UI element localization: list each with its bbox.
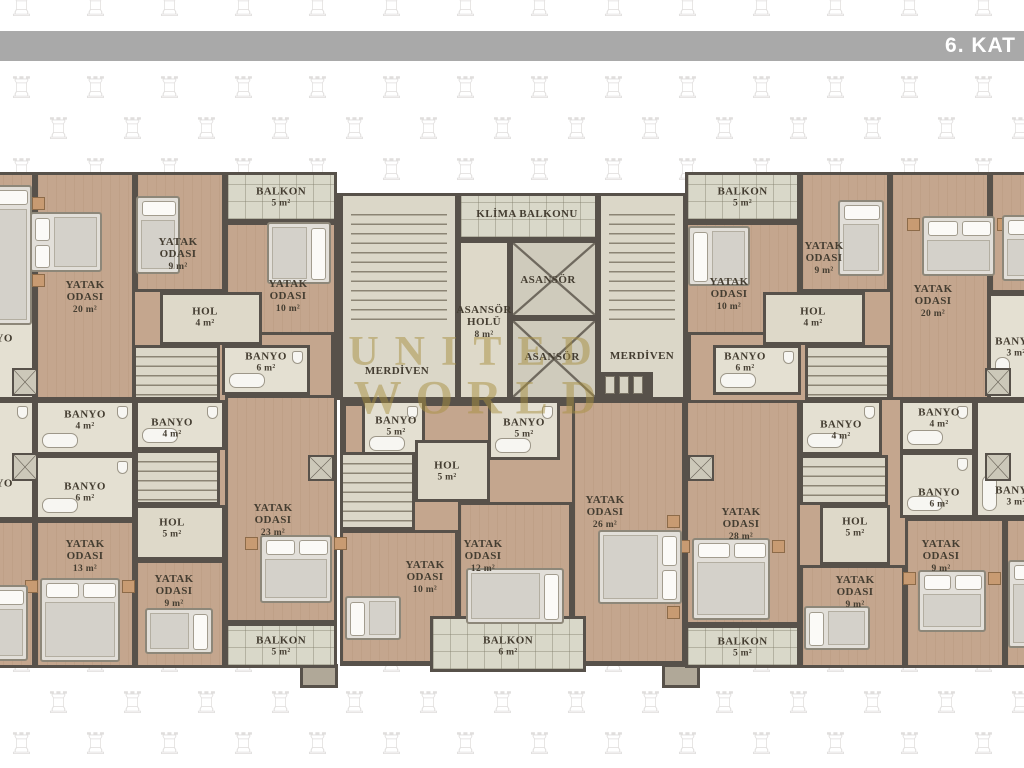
shaft-x-lines [310,457,332,479]
room-name: BANYO [724,350,766,362]
logo-pattern-icon: ♖ [896,0,923,22]
shaft-x-icon [308,455,334,481]
nightstand [334,537,347,550]
logo-pattern-icon: ♖ [415,689,442,719]
floor-title: 6. KAT [945,34,1016,58]
room-stairs-right-bottom [800,455,888,505]
logo-pattern-icon: ♖ [156,0,183,22]
room-label-yatak-odasi-10-middle: YATAK ODASI10 m² [396,559,454,595]
shaft-x-lines [14,370,36,394]
room-name: YATAK ODASI [56,279,114,304]
toilet-icon [207,406,218,419]
nightstand [32,274,45,287]
room-area: 10 m² [396,585,454,595]
room-area: 6 m² [245,364,287,374]
logo-pattern-icon: ♖ [896,74,923,104]
logo-pattern-icon: ♖ [674,730,701,760]
room-label-banyo-4-right-a: BANYO4 m² [820,418,862,441]
logo-pattern-icon: ♖ [193,115,220,145]
room-name: BALKON [717,635,767,647]
pillow [844,205,880,220]
room-name: BANYO [918,406,960,418]
room-area: 4 m² [151,430,193,440]
logo-pattern-icon: ♖ [970,74,997,104]
logo-pattern-icon: ♖ [822,74,849,104]
shaft-x-icon [985,368,1011,396]
room-label-banyo-6-left-top: BANYO6 m² [245,350,287,373]
pillow [662,570,677,600]
toilet-icon [957,458,968,471]
bed [260,535,332,603]
room-name: YATAK ODASI [244,502,302,527]
logo-pattern-icon: ♖ [378,730,405,760]
pillow [193,614,208,650]
pillow [693,232,708,282]
bed [30,212,102,272]
logo-pattern-icon: ♖ [452,730,479,760]
logo-pattern-icon: ♖ [156,730,183,760]
blanket [927,240,990,271]
room-area: 5 m² [717,648,767,658]
logo-pattern-icon: ♖ [600,730,627,760]
room-name: ASANSÖR HOLÜ [455,304,513,329]
nightstand [667,515,680,528]
logo-pattern-icon: ♖ [822,0,849,22]
room-label-hol-4-right-top: HOL4 m² [800,305,826,328]
logo-pattern-icon: ♖ [1007,689,1024,719]
room-label-asansor-1: ASANSÖR [520,274,575,286]
toilet-icon [292,351,303,364]
bathtub-icon [369,436,405,451]
room-name: YATAK ODASI [912,538,970,563]
room-label-partial-bath-left-mid: BANYOm² [0,332,13,355]
shaft-x-lines [987,455,1009,479]
room-name: BANYO [0,477,13,489]
logo-pattern-icon: ♖ [785,115,812,145]
bathtub-icon [495,438,531,453]
room-area: 5 m² [256,199,306,209]
pillow [0,190,28,205]
room-name: BANYO [151,416,193,428]
room-stairs-left-top [133,345,220,400]
logo-pattern-icon: ♖ [230,730,257,760]
room-area: 6 m² [918,500,960,510]
logo-pattern-icon: ♖ [859,689,886,719]
room-label-yatak-odasi-12-middle: YATAK ODASI12 m² [454,538,512,574]
logo-pattern-icon: ♖ [822,730,849,760]
room-label-balkon-5-left-top: BALKON5 m² [256,185,306,208]
logo-pattern-icon: ♖ [933,689,960,719]
room-stairs-middle [340,452,415,530]
pillow [0,590,24,605]
logo-pattern-icon: ♖ [230,0,257,22]
logo-pattern-icon: ♖ [637,115,664,145]
blanket [45,602,115,657]
bed [0,585,28,661]
room-area: 26 m² [576,520,634,530]
logo-pattern-icon: ♖ [637,689,664,719]
logo-pattern-icon: ♖ [8,0,35,22]
pillow [962,221,992,236]
room-area: 6 m² [724,364,766,374]
room-label-yatak-odasi-26-middle: YATAK ODASI26 m² [576,494,634,530]
blanket [923,594,981,627]
room-area: 4 m² [820,432,862,442]
nightstand [122,580,135,593]
pillow [809,612,824,646]
room-label-yatak-odasi-23-left: YATAK ODASI23 m² [244,502,302,538]
logo-pattern-icon: ♖ [378,0,405,22]
room-area: 4 m² [64,422,106,432]
logo-pattern-icon: ♖ [859,115,886,145]
logo-pattern-icon: ♖ [230,74,257,104]
bed [40,578,120,662]
logo-pattern-icon: ♖ [896,730,923,760]
room-area: 5 m² [842,529,868,539]
room-label-merdiven-right: MERDİVEN [610,350,674,362]
logo-pattern-icon: ♖ [1007,115,1024,145]
room-area: 5 m² [434,473,460,483]
pillow [734,543,766,558]
logo-pattern-icon: ♖ [82,0,109,22]
pillow [1014,565,1024,580]
toilet-icon [783,351,794,364]
pillow [46,583,79,598]
logo-pattern-icon: ♖ [156,74,183,104]
room-area: 3 m² [995,498,1024,508]
room-area: 5 m² [375,428,417,438]
bed [804,606,870,650]
logo-pattern-icon: ♖ [8,730,35,760]
room-label-yatak-odasi-20-right: YATAK ODASI20 m² [904,283,962,319]
logo-pattern-icon: ♖ [600,156,627,186]
room-name: YATAK ODASI [149,236,207,261]
logo-pattern-icon: ♖ [378,74,405,104]
blanket [369,601,396,635]
pillow [350,602,365,636]
pillow [299,540,328,555]
room-name: ASANSÖR [520,274,575,286]
room-label-banyo-4-left-a: BANYO4 m² [64,408,106,431]
logo-pattern-icon: ♖ [600,0,627,22]
room-stairs-left-bottom [135,450,220,505]
logo-pattern-icon: ♖ [45,689,72,719]
room-name: HOL [800,305,826,317]
room-label-yatak-odasi-10-left-top: YATAK ODASI10 m² [259,278,317,314]
bed [922,216,995,276]
room-label-yatak-odasi-9-right-top: YATAK ODASI9 m² [795,240,853,276]
blanket [603,535,658,599]
logo-pattern-icon: ♖ [267,115,294,145]
room-name: HOL [159,516,185,528]
bathtub-icon [907,430,943,445]
room-area: 12 m² [454,564,512,574]
room-area: 13 m² [56,564,114,574]
bed [1008,560,1024,648]
shaft-x-lines [987,370,1009,394]
room-area: 5 m² [503,430,545,440]
room-name: BALKON [483,634,533,646]
room-label-yatak-odasi-20-left: YATAK ODASI20 m² [56,279,114,315]
room-name: BANYO [918,486,960,498]
shaft-x-icon [688,455,714,481]
pillow [928,221,958,236]
shaft-x-lines [14,455,36,479]
blanket [150,613,189,649]
room-name: YATAK ODASI [454,538,512,563]
logo-pattern-icon: ♖ [489,115,516,145]
room-label-banyo-4-left-b: BANYO4 m² [151,416,193,439]
room-name: YATAK ODASI [700,276,758,301]
room-area: 23 m² [244,528,302,538]
blanket [712,231,745,281]
shaft-x-icon [12,453,38,481]
logo-pattern-icon: ♖ [933,115,960,145]
bed [598,530,682,604]
logo-pattern-icon: ♖ [526,74,553,104]
room-area: 4 m² [800,319,826,329]
room-label-hol-5-left-bottom: HOL5 m² [159,516,185,539]
toilet-icon [117,461,128,474]
blanket [272,227,307,279]
blanket [697,562,765,615]
bed [0,185,32,325]
room-name: BANYO [0,332,13,344]
stair-treads-icon [609,206,675,323]
nightstand [903,572,916,585]
room-stairs-right-top [805,345,890,400]
logo-pattern-icon: ♖ [304,74,331,104]
room-area: 5 m² [717,199,767,209]
logo-pattern-icon: ♖ [785,689,812,719]
logo-pattern-icon: ♖ [711,689,738,719]
pillow [35,245,50,268]
room-area: 9 m² [826,600,884,610]
room-name: YATAK ODASI [145,573,203,598]
shaft-x-icon [12,368,38,396]
logo-pattern-icon: ♖ [970,730,997,760]
nightstand [32,197,45,210]
logo-pattern-icon: ♖ [526,730,553,760]
room-name: BALKON [256,634,306,646]
room-label-yatak-odasi-9-left-bottom: YATAK ODASI9 m² [145,573,203,609]
bathtub-icon [720,373,756,388]
pillow [924,575,951,590]
logo-pattern-icon: ♖ [600,74,627,104]
room-name: BALKON [256,185,306,197]
logo-pattern-icon: ♖ [711,115,738,145]
toilet-icon [117,406,128,419]
room-area: 3 m² [995,349,1024,359]
room-name: BANYO [995,335,1024,347]
room-label-yatak-odasi-9-right-bottom-b: YATAK ODASI9 m² [912,538,970,574]
logo-pattern-icon: ♖ [119,115,146,145]
room-area: m² [0,491,13,501]
room-label-banyo-6-right-bottom: BANYO6 m² [918,486,960,509]
pillow [35,218,50,241]
pillow [698,543,730,558]
room-label-yatak-odasi-13-left: YATAK ODASI13 m² [56,538,114,574]
room-label-balkon-5-left-bottom: BALKON5 m² [256,634,306,657]
room-name: BANYO [245,350,287,362]
shaft-x-lines [690,457,712,479]
stair-treads-icon [351,206,447,323]
room-merdiven-right [598,193,686,400]
room-name: BANYO [64,408,106,420]
room-area: 4 m² [918,420,960,430]
room-name: HOL [192,305,218,317]
room-label-partial-bath-right-bottom: BANYO3 m² [995,484,1024,507]
bathtub-icon [42,433,78,448]
room-label-yatak-odasi-10-right-top: YATAK ODASI10 m² [700,276,758,312]
room-label-balkon-5-right-top: BALKON5 m² [717,185,767,208]
room-label-banyo-4-right-b: BANYO4 m² [918,406,960,429]
room-name: YATAK ODASI [795,240,853,265]
room-label-banyo-6-right-top: BANYO6 m² [724,350,766,373]
room-area: 10 m² [259,304,317,314]
room-area: 9 m² [149,262,207,272]
room-area: 9 m² [145,599,203,609]
bed [345,596,401,640]
room-label-balkon-5-right-bottom: BALKON5 m² [717,635,767,658]
logo-pattern-icon: ♖ [82,730,109,760]
watermark-text-line2: WORLD [354,371,611,426]
logo-pattern-icon: ♖ [341,115,368,145]
logo-pattern-icon: ♖ [748,730,775,760]
logo-pattern-icon: ♖ [341,689,368,719]
room-name: HOL [842,515,868,527]
room-label-balkon-6-middle: BALKON6 m² [483,634,533,657]
nightstand [667,606,680,619]
room-label-partial-bath-right-mid: BANYO3 m² [995,335,1024,358]
room-name: BANYO [64,480,106,492]
bathtub-icon [229,373,265,388]
pillow [266,540,295,555]
room-label-partial-bath-left-bottom: BANYOm² [0,477,13,500]
logo-pattern-icon: ♖ [304,730,331,760]
bed [466,568,564,624]
floor-header-bar: 6. KAT [0,31,1024,61]
room-area: 10 m² [700,302,758,312]
room-label-klima-balkonu: KLİMA BALKONU [476,208,577,220]
room-area: 4 m² [192,319,218,329]
bed [145,608,213,654]
pillow [662,536,677,566]
room-area: 6 m² [483,648,533,658]
room-name: YATAK ODASI [712,506,770,531]
room-name: YATAK ODASI [576,494,634,519]
room-name: YATAK ODASI [396,559,454,584]
blanket [0,209,27,320]
logo-pattern-icon: ♖ [970,0,997,22]
toilet-icon [17,406,28,419]
toilet-icon [864,406,875,419]
logo-pattern-icon: ♖ [267,689,294,719]
blanket [1007,239,1024,276]
blanket [0,609,23,656]
duct-slit [619,376,629,394]
room-name: BANYO [995,484,1024,496]
logo-pattern-icon: ♖ [45,115,72,145]
logo-pattern-icon: ♖ [452,0,479,22]
bed [918,570,986,632]
room-area: m² [0,346,13,356]
pillow [544,574,559,620]
room-area: 28 m² [712,532,770,542]
logo-pattern-icon: ♖ [563,115,590,145]
room-name: MERDİVEN [610,350,674,362]
logo-pattern-icon: ♖ [526,156,553,186]
blanket [54,217,97,267]
room-name: YATAK ODASI [904,283,962,308]
blanket [828,611,865,645]
logo-pattern-icon: ♖ [489,689,516,719]
logo-pattern-icon: ♖ [378,156,405,186]
bed [1002,215,1024,281]
blanket [265,559,327,598]
logo-pattern-icon: ♖ [674,74,701,104]
pillow [955,575,982,590]
pillow [83,583,116,598]
room-name: YATAK ODASI [259,278,317,303]
logo-pattern-icon: ♖ [674,0,701,22]
logo-pattern-icon: ♖ [452,74,479,104]
nightstand [772,540,785,553]
logo-pattern-icon: ♖ [526,0,553,22]
pillow [142,201,176,216]
logo-pattern-icon: ♖ [8,74,35,104]
logo-pattern-icon: ♖ [563,689,590,719]
blanket [471,573,540,619]
room-area: 20 m² [56,305,114,315]
room-name: BALKON [717,185,767,197]
logo-pattern-icon: ♖ [193,689,220,719]
nightstand [245,537,258,550]
room-label-hol-4-left-top: HOL4 m² [192,305,218,328]
floor-plan-canvas: 6. KAT ♖♖♖♖♖♖♖♖♖♖♖♖♖♖♖♖♖♖♖♖♖♖♖♖♖♖♖♖♖♖♖♖♖… [0,0,1024,768]
nightstand [988,572,1001,585]
bed [692,538,770,620]
room-label-yatak-odasi-9-left-top: YATAK ODASI9 m² [149,236,207,272]
room-area: 9 m² [795,266,853,276]
room-name: HOL [434,459,460,471]
blanket [1013,584,1024,643]
room-area: 5 m² [159,530,185,540]
room-area: 20 m² [904,309,962,319]
logo-pattern-icon: ♖ [304,0,331,22]
room-label-hol-5-right: HOL5 m² [842,515,868,538]
shaft-x-icon [985,453,1011,481]
logo-pattern-icon: ♖ [452,156,479,186]
pillow [1008,220,1024,235]
room-name: YATAK ODASI [56,538,114,563]
bed [267,222,331,284]
logo-pattern-icon: ♖ [82,74,109,104]
logo-pattern-icon: ♖ [748,0,775,22]
watermark-text-line1: UNITED [348,328,607,376]
room-area: 5 m² [256,647,306,657]
room-label-yatak-odasi-9-right-bottom-a: YATAK ODASI9 m² [826,574,884,610]
room-label-banyo-6-left-bottom: BANYO6 m² [64,480,106,503]
room-area: 6 m² [64,494,106,504]
logo-pattern-icon: ♖ [748,74,775,104]
nightstand [907,218,920,231]
room-name: BANYO [820,418,862,430]
room-name: KLİMA BALKONU [476,208,577,220]
duct-slit [633,376,643,394]
room-area: 9 m² [912,564,970,574]
logo-pattern-icon: ♖ [415,115,442,145]
